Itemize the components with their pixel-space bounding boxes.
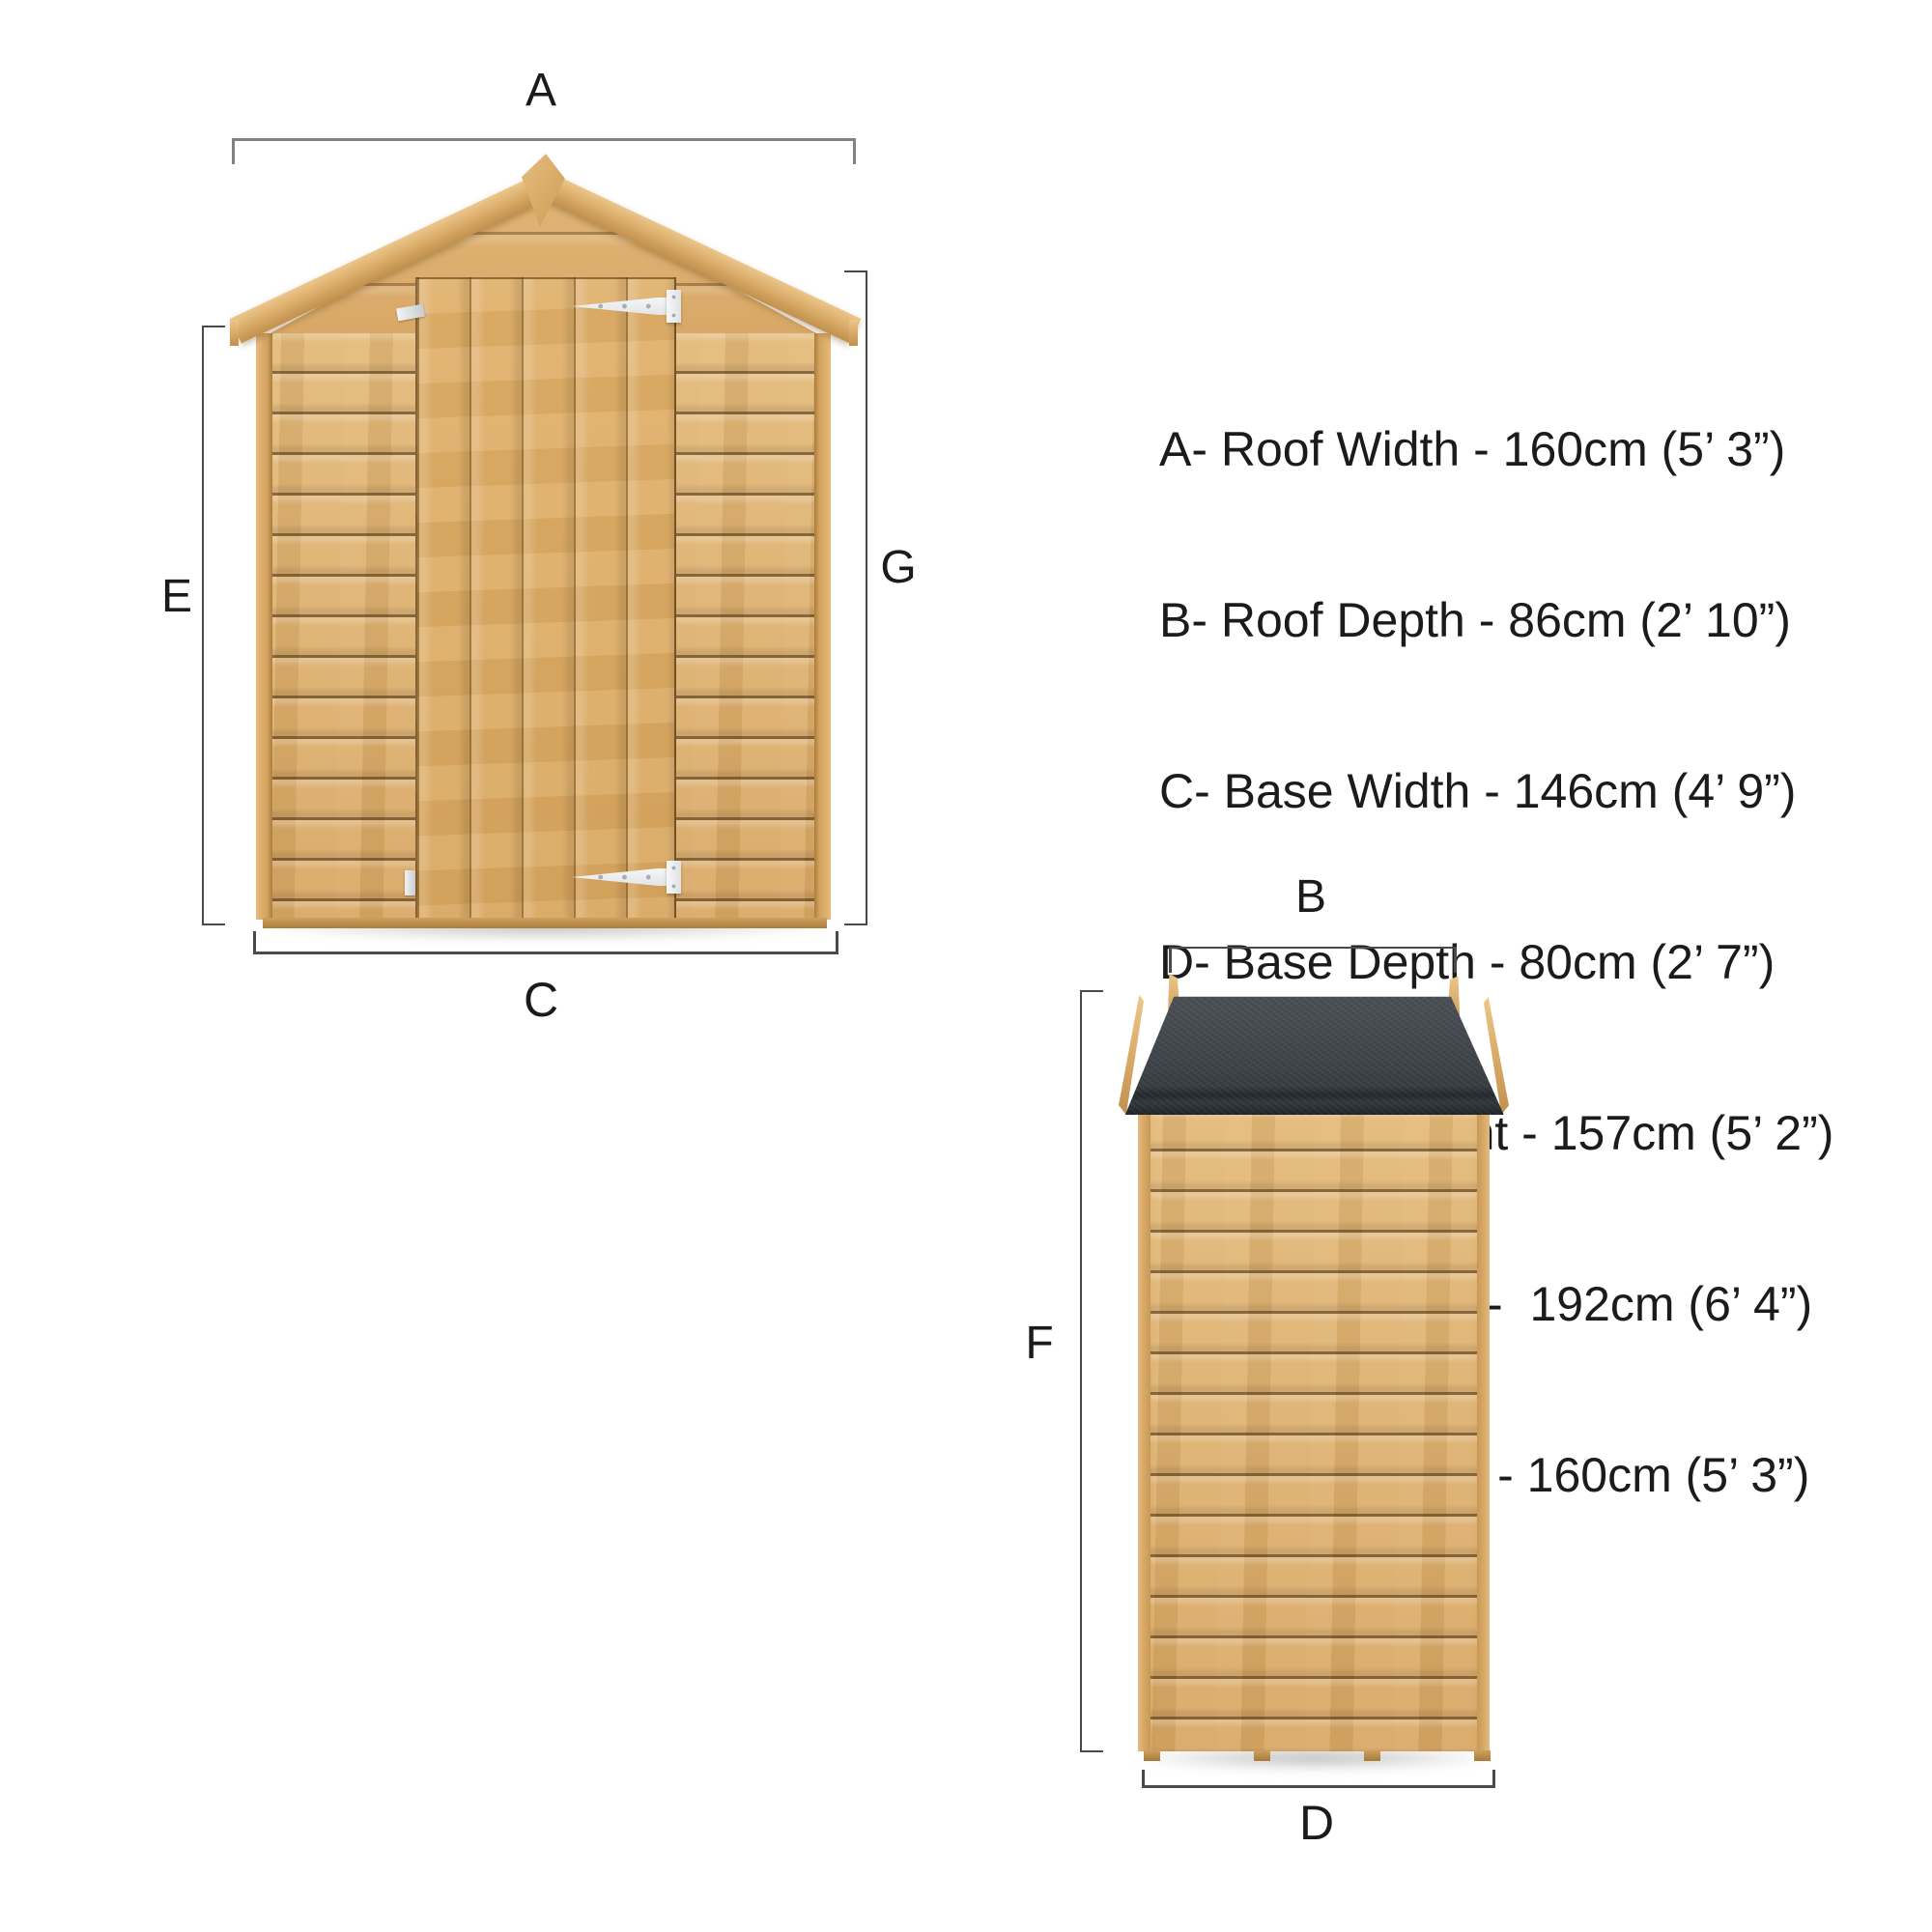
dim-line-base-depth: [1142, 1785, 1495, 1788]
dim-label-eaves-height: E: [148, 574, 206, 620]
front-corner-trim-right: [814, 333, 831, 920]
side-elevation-view: B F D: [966, 850, 1642, 1932]
side-roof-felt: [1121, 993, 1507, 1115]
side-ground-shadow: [1125, 1748, 1502, 1772]
side-foot-3: [1364, 1750, 1380, 1761]
eave-cap-right: [849, 320, 858, 346]
side-foot-2: [1254, 1750, 1270, 1761]
shed-dimensions-diagram: A E G: [0, 0, 1932, 1932]
dim-list-item: A- Roof Width - 160cm (5’ 3”): [1159, 421, 1833, 478]
front-corner-trim-left: [256, 333, 272, 920]
dim-list-item: C- Base Width - 146cm (4’ 9”): [1159, 763, 1833, 820]
dim-line-roof-height: [1080, 990, 1082, 1752]
side-foot-1: [1144, 1750, 1160, 1761]
dim-line-roof-depth: [1169, 947, 1457, 949]
dim-line-base-width: [253, 952, 838, 954]
dim-label-roof-height: F: [1010, 1321, 1068, 1367]
side-foot-4: [1474, 1750, 1491, 1761]
dim-list-item: B- Roof Depth - 86cm (2’ 10”): [1159, 592, 1833, 649]
door-latch-bottom: [405, 870, 415, 895]
hinge-plate-icon: [667, 290, 681, 323]
eave-cap-left: [230, 320, 239, 346]
dim-line-roof-width: [232, 138, 856, 141]
dim-label-roof-depth: B: [1282, 874, 1340, 921]
shed-door: [415, 277, 676, 920]
dim-label-base-width: C: [512, 976, 570, 1024]
dim-label-base-depth: D: [1288, 1799, 1346, 1847]
dim-label-roof-width: A: [512, 68, 570, 114]
dim-label-door-height: G: [869, 545, 927, 591]
front-base-rail: [263, 918, 827, 928]
dim-line-door-height: [866, 270, 867, 925]
dim-line-eaves-height: [202, 326, 204, 925]
shed-side-wall: [1138, 1111, 1490, 1751]
front-elevation-view: A E G: [0, 0, 966, 1159]
hinge-plate-icon: [667, 861, 681, 894]
